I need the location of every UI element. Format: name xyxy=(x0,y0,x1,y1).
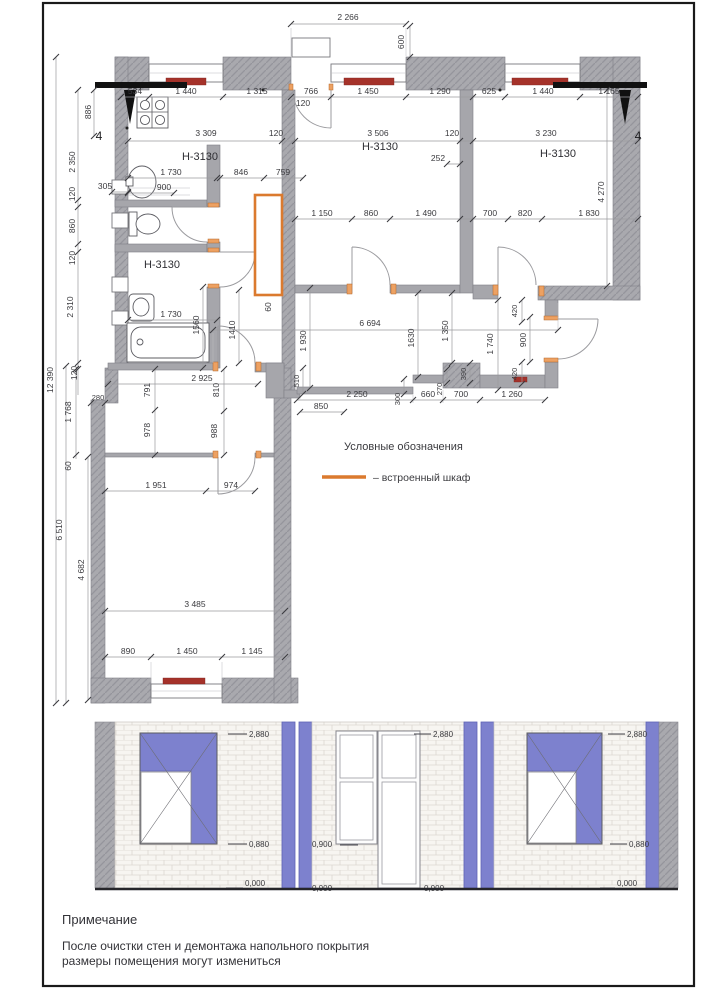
elevation-left: 2,880 0,880 0,000 xyxy=(95,722,295,888)
window-bottom-room xyxy=(151,678,222,698)
dim-label: 1 768 xyxy=(63,401,73,423)
dim-label: 900 xyxy=(157,182,171,192)
dim-label: 850 xyxy=(314,401,328,411)
dim-label: 3 506 xyxy=(367,128,389,138)
dim-label: 974 xyxy=(224,480,238,490)
dim-label: 1 951 xyxy=(145,480,167,490)
dim-label: 300 xyxy=(393,393,402,406)
radiator-middle xyxy=(344,78,394,85)
dim-label: 660 xyxy=(421,389,435,399)
legend-title: Условные обозначения xyxy=(344,441,463,453)
dim-label: 120 xyxy=(67,187,77,201)
dim-label: 1560 xyxy=(191,315,201,334)
level-label: 2,880 xyxy=(249,730,270,739)
door-right-room xyxy=(498,247,536,285)
dim-label: 305 xyxy=(98,181,112,191)
dim-label: 1 315 xyxy=(246,86,268,96)
dim-label: 1 350 xyxy=(440,320,450,342)
dim-label: 3 485 xyxy=(184,599,206,609)
dim-label: 846 xyxy=(234,167,248,177)
dim-label: 1 730 xyxy=(160,167,182,177)
stove-icon xyxy=(137,97,168,128)
notes: Примечание После очистки стен и демонтаж… xyxy=(62,912,369,968)
dim-label: 1630 xyxy=(406,328,416,347)
dim-label: 860 xyxy=(364,208,378,218)
level-label: 0,880 xyxy=(629,840,650,849)
dim-label: 1 730 xyxy=(160,309,182,319)
elevation-right: 2,880 0,880 0,000 xyxy=(481,722,678,888)
radiator-bottom-room xyxy=(163,678,205,684)
level-label: 0,000 xyxy=(245,879,266,888)
toilet-icon xyxy=(129,212,160,236)
door-wc xyxy=(172,207,207,242)
dim-label: 280 xyxy=(92,393,105,402)
dim-label: 420 xyxy=(510,305,519,318)
dim-label: 810 xyxy=(211,383,221,397)
door-entry xyxy=(558,319,598,359)
elevation-middle: 2,880 0,900 0,000 0,000 xyxy=(299,722,477,893)
dim-label: 2 925 xyxy=(191,373,213,383)
room-label-right: Н-3130 xyxy=(540,148,576,160)
dim-label: 120 xyxy=(269,128,283,138)
level-label: 2,880 xyxy=(627,730,648,739)
dim-label: 2 310 xyxy=(65,296,75,318)
dim-label: 2 266 xyxy=(337,12,359,22)
dim-label: 1 450 xyxy=(357,86,379,96)
dim-label: 1 440 xyxy=(532,86,554,96)
dim-label: 1 450 xyxy=(176,646,198,656)
dim-label: 4 270 xyxy=(596,181,606,203)
room-label-kitchen: Н-3130 xyxy=(182,151,218,163)
balcony-door-leaf-outside xyxy=(292,38,330,57)
drawing-page: 4 4 2 266 600 534 1 440 1 315 766 120 1 … xyxy=(0,0,707,1000)
dim-label: 791 xyxy=(142,383,152,397)
dim-label: 4 682 xyxy=(76,559,86,581)
dim-label: 2 350 xyxy=(67,151,77,173)
dim-label: 988 xyxy=(209,424,219,438)
dim-label: 120 xyxy=(67,251,77,265)
dim-label: 60 xyxy=(263,302,273,312)
level-label: 0,900 xyxy=(312,840,333,849)
dim-label: 1 830 xyxy=(578,208,600,218)
dim-label: 6 510 xyxy=(54,519,64,541)
dim-label: 886 xyxy=(83,105,93,119)
dim-label: 1 165 xyxy=(598,86,620,96)
built-in-wardrobe xyxy=(255,195,282,295)
dim-label: 1 290 xyxy=(429,86,451,96)
dim-label: 1410 xyxy=(227,320,237,339)
dim-label: 120 xyxy=(69,366,79,380)
dim-label: 600 xyxy=(396,35,406,49)
dim-label: 510 xyxy=(292,375,301,388)
door-middle-room xyxy=(352,247,390,285)
legend: Условные обозначения – встроенный шкаф xyxy=(322,441,471,484)
dim-label: 890 xyxy=(121,646,135,656)
dim-label: 1 740 xyxy=(485,333,495,355)
dim-label: 700 xyxy=(483,208,497,218)
dim-label: 120 xyxy=(445,128,459,138)
dim-label: 1 145 xyxy=(241,646,263,656)
dim-label: 759 xyxy=(276,167,290,177)
level-label: 0,000 xyxy=(617,879,638,888)
dim-label: 3 230 xyxy=(535,128,557,138)
notes-line-2: размеры помещения могут измениться xyxy=(62,954,281,968)
level-label: 0,880 xyxy=(249,840,270,849)
dim-label: 1 260 xyxy=(501,389,523,399)
legend-wardrobe-label: – встроенный шкаф xyxy=(373,472,471,484)
floor-plan-drawing: 4 4 2 266 600 534 1 440 1 315 766 120 1 … xyxy=(0,0,707,1000)
dim-label: 120 xyxy=(296,98,310,108)
dim-label: 700 xyxy=(454,389,468,399)
room-label-bath: Н-3130 xyxy=(144,259,180,271)
dim-label: 1 930 xyxy=(298,330,308,352)
door-bath xyxy=(220,252,255,287)
section-label: 4 xyxy=(96,129,103,143)
notes-line-1: После очистки стен и демонтажа напольног… xyxy=(62,939,369,953)
dim-label: 1 440 xyxy=(175,86,197,96)
dim-label: 900 xyxy=(518,333,528,347)
dim-label: 6 694 xyxy=(359,318,381,328)
level-label: 2,880 xyxy=(433,730,454,739)
dim-label: 1 150 xyxy=(311,208,333,218)
dim-label: 270 xyxy=(435,383,444,396)
dim-label: 1 490 xyxy=(415,208,437,218)
dim-label: 820 xyxy=(518,208,532,218)
notes-title: Примечание xyxy=(62,912,137,927)
dim-label: 60 xyxy=(63,461,73,471)
room-label-middle: Н-3130 xyxy=(362,141,398,153)
dim-label: 252 xyxy=(431,153,445,163)
dim-label: 2 250 xyxy=(346,389,368,399)
dim-label: 534 xyxy=(128,86,142,96)
dim-label: 625 xyxy=(482,86,496,96)
dim-label: 12 390 xyxy=(45,367,55,393)
dim-label: 766 xyxy=(304,86,318,96)
basin-icon xyxy=(129,294,154,321)
dim-label: 978 xyxy=(142,423,152,437)
dim-label: 420 xyxy=(510,368,519,381)
dim-label: 390 xyxy=(459,368,468,381)
dim-label: 3 309 xyxy=(195,128,217,138)
dim-label: 860 xyxy=(67,219,77,233)
